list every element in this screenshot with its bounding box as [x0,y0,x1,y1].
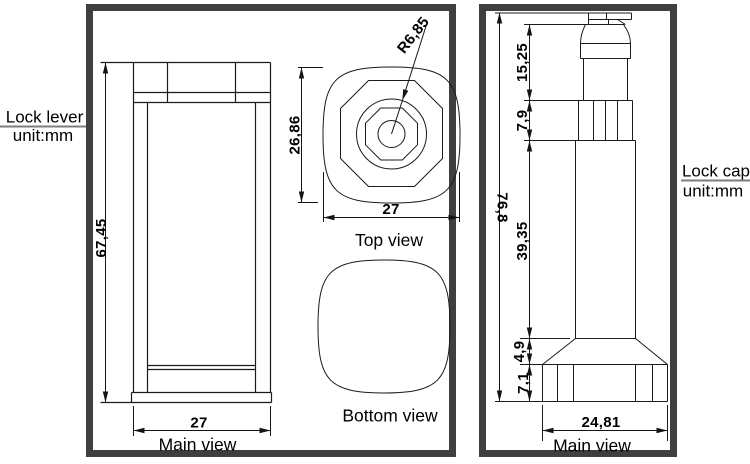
dim-cap-head-height: 15,25 [514,43,531,82]
lock-cap-main-view-label: Main view [553,436,631,456]
lock-lever-unit: unit:mm [13,126,73,145]
lock-lever-top-view-label: Top view [355,230,423,250]
dim-lever-width: 27 [190,415,207,432]
lock-lever-main-view-dimensions: 67,45 27 [93,63,271,437]
lock-lever-main-view-label: Main view [159,435,237,455]
dim-cap-total-height: 76,8 [494,192,511,222]
dim-cap-base-width: 24,81 [581,414,620,431]
dim-top-height: 26,86 [287,115,304,154]
bolt-seal-technical-drawing: 67,45 27 Main view 26,86 27 R6,85 Top vi [0,0,750,464]
lock-cap-label-block: Lock cap unit:mm [681,162,750,201]
lock-cap-panel: 76,8 15,25 7,9 39,35 4,9 7,1 24,81 Main … [483,8,674,456]
lock-lever-top-view-drawing [323,67,460,203]
dim-lever-height: 67,45 [93,218,110,257]
lock-cap-panel-frame [483,8,674,454]
lock-cap-unit: unit:mm [683,182,743,201]
lock-lever-bottom-view-label: Bottom view [342,406,438,426]
lock-cap-title: Lock cap [682,162,750,181]
lock-lever-main-view-drawing [101,63,272,403]
dim-cap-taper-height: 4,9 [511,341,528,363]
lock-cap-dimensions: 76,8 15,25 7,9 39,35 4,9 7,1 24,81 [494,13,668,432]
lock-lever-label-block: Lock lever unit:mm [0,108,86,146]
lock-lever-top-view-dimensions: 26,86 27 R6,85 [287,14,460,222]
dim-top-width: 27 [382,201,399,218]
dim-top-radius: R6,85 [394,14,433,57]
dim-cap-shaft-height: 39,35 [514,221,531,260]
dim-cap-collar-height: 7,9 [514,110,531,132]
dim-cap-base-height: 7,1 [515,372,532,394]
lock-lever-bottom-view-drawing [318,260,450,393]
lock-lever-panel: 67,45 27 Main view 26,86 27 R6,85 Top vi [90,8,461,455]
lock-lever-title: Lock lever [6,108,84,127]
